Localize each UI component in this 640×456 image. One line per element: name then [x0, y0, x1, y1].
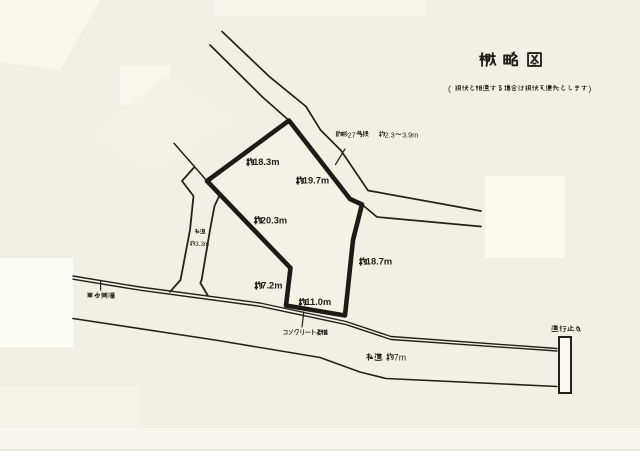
svg-text:19.7m: 19.7m	[303, 176, 329, 186]
svg-text:11.0m: 11.0m	[305, 297, 331, 307]
svg-text:7m: 7m	[394, 352, 406, 362]
svg-text:): )	[589, 83, 592, 93]
svg-text:27: 27	[348, 130, 356, 139]
svg-text:3.3m: 3.3m	[195, 241, 209, 248]
svg-text:20.3m: 20.3m	[261, 215, 287, 225]
svg-text:(: (	[448, 83, 451, 93]
svg-text:2.3: 2.3	[385, 130, 395, 139]
svg-text:18.7m: 18.7m	[366, 257, 392, 267]
svg-text:18.3m: 18.3m	[253, 157, 279, 167]
svg-text:7.2m: 7.2m	[261, 281, 282, 291]
svg-text:3.9m: 3.9m	[402, 130, 418, 139]
